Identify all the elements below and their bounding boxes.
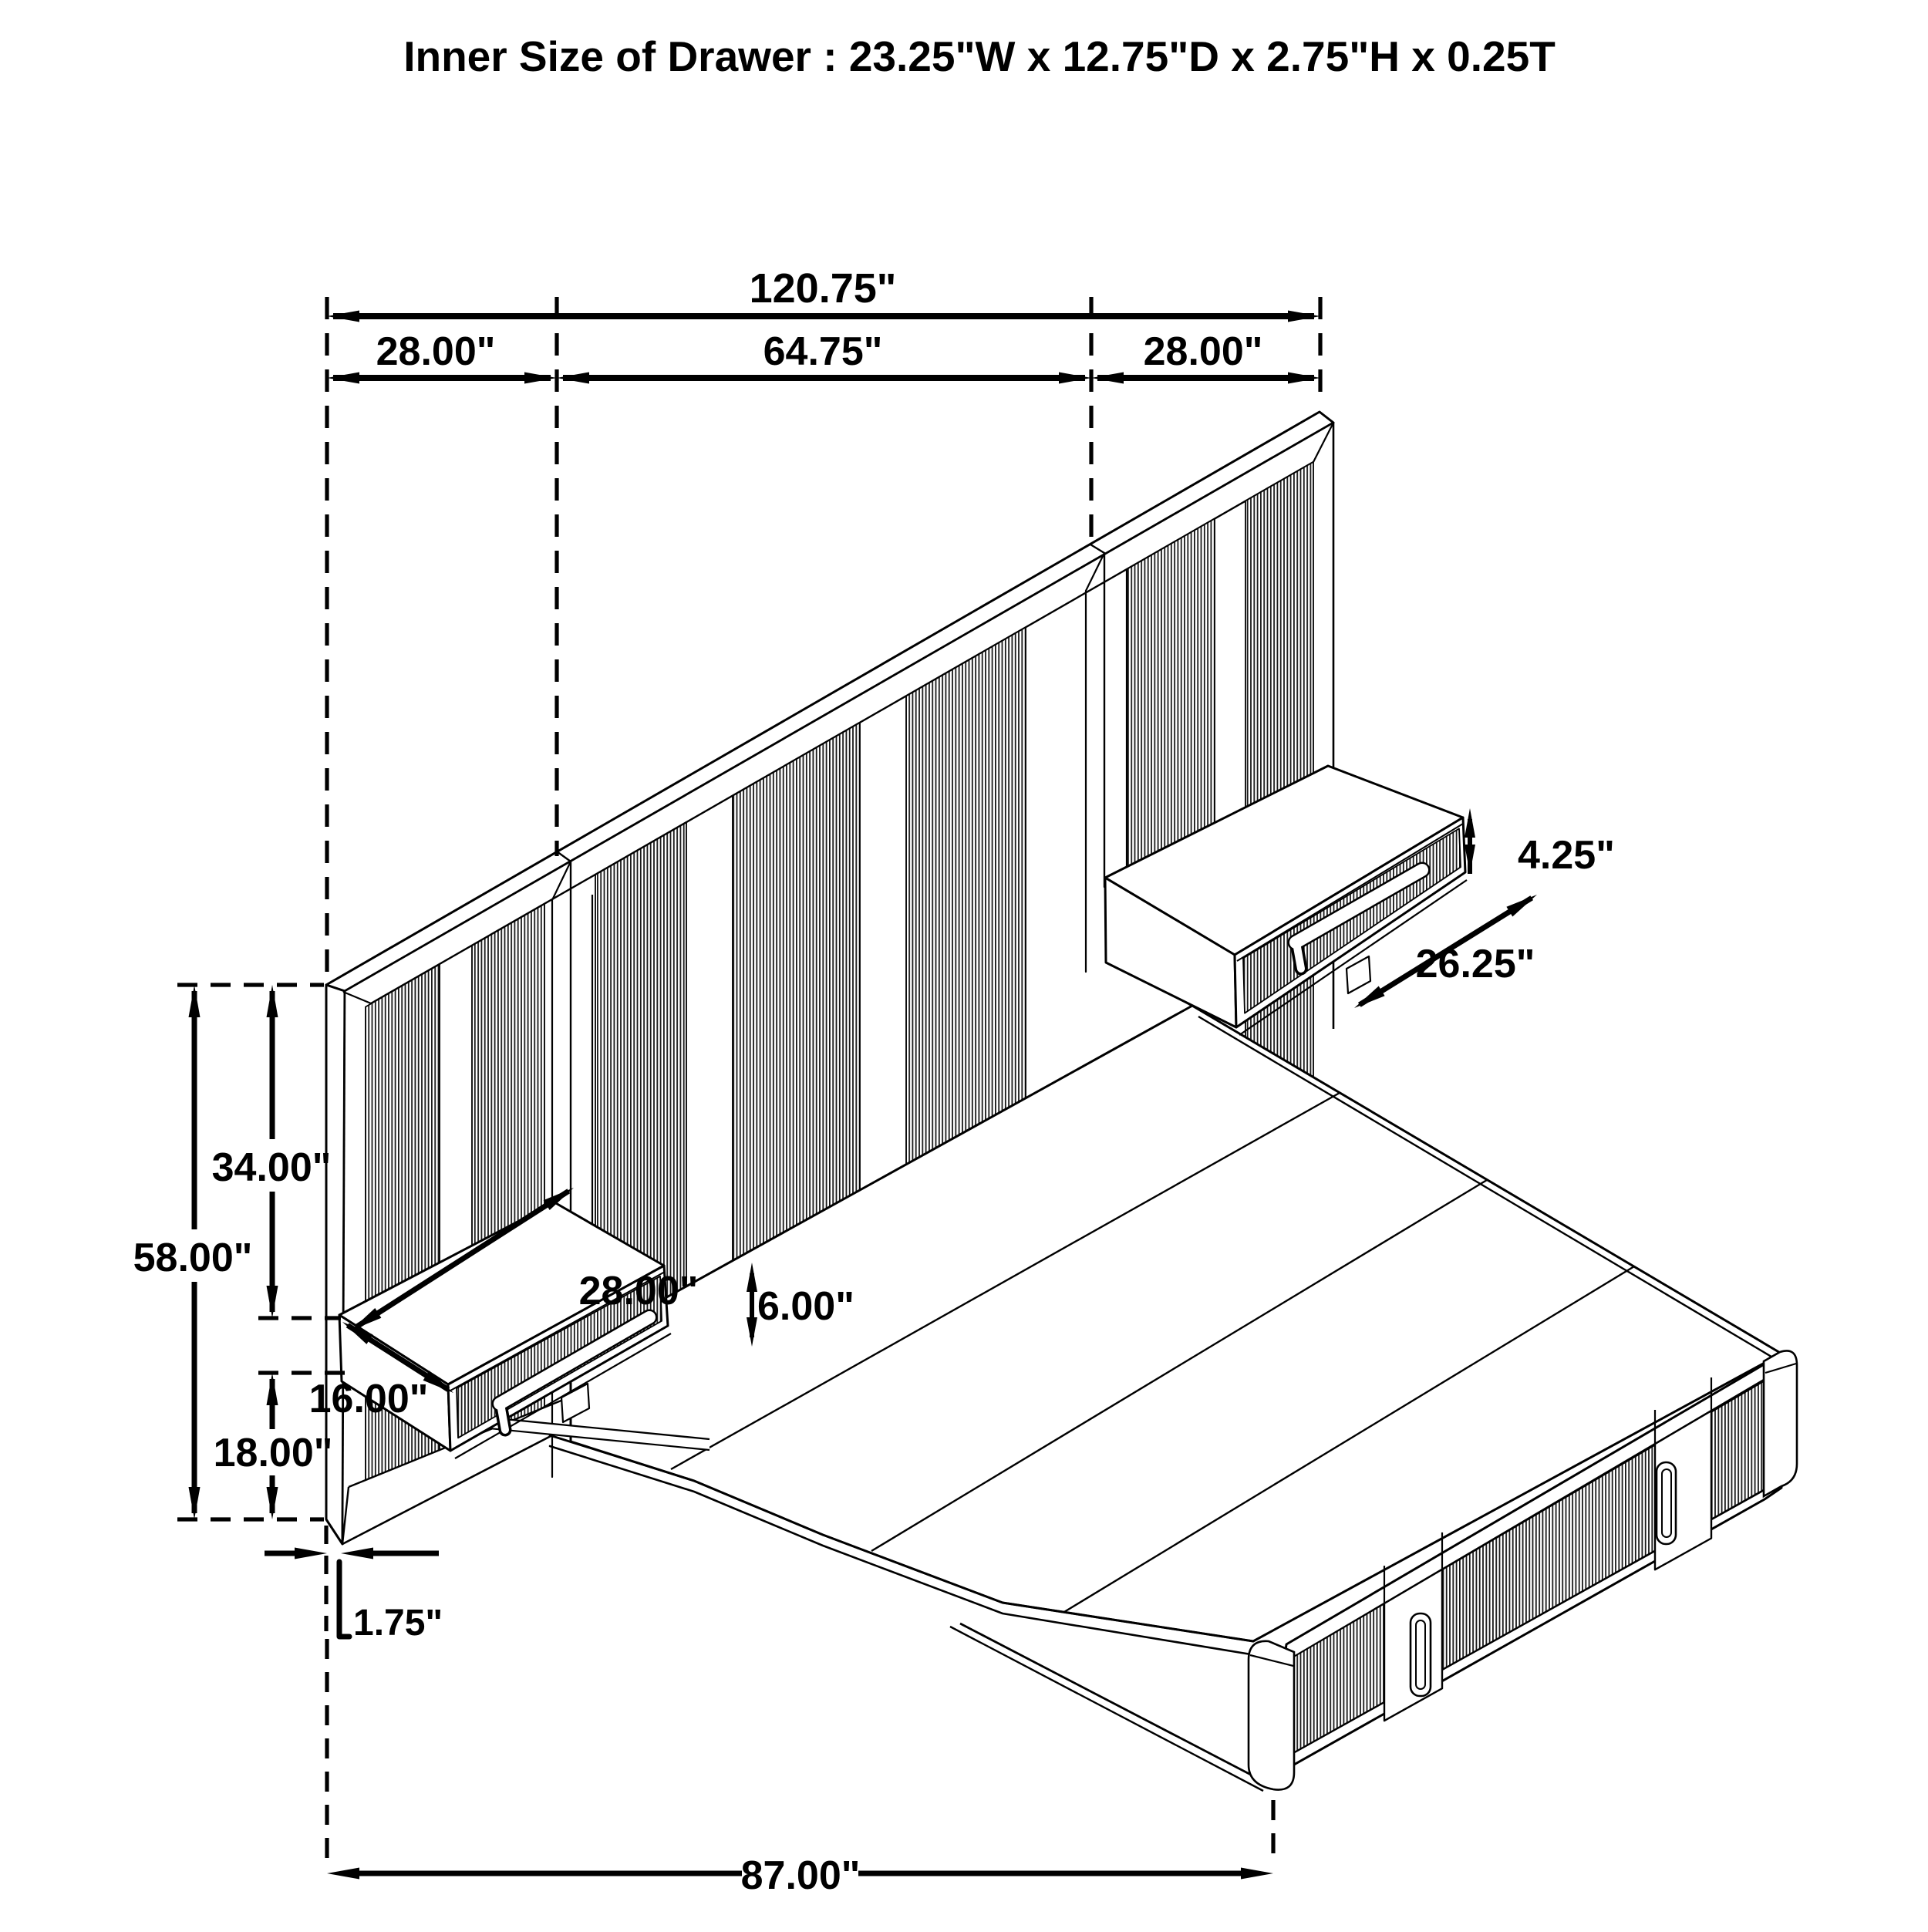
svg-text:1.75": 1.75" [353, 1603, 443, 1644]
svg-text:34.00": 34.00" [212, 1145, 332, 1190]
svg-text:18.00": 18.00" [214, 1431, 333, 1475]
svg-text:6.00": 6.00" [757, 1284, 854, 1329]
svg-text:28.00": 28.00" [579, 1269, 699, 1313]
svg-text:58.00": 58.00" [133, 1236, 253, 1280]
svg-text:4.25": 4.25" [1518, 833, 1615, 878]
svg-text:28.00": 28.00" [376, 329, 496, 374]
svg-text:28.00": 28.00" [1144, 329, 1263, 374]
svg-text:26.25": 26.25" [1416, 942, 1535, 986]
svg-text:120.75": 120.75" [750, 265, 897, 312]
svg-text:64.75": 64.75" [763, 329, 883, 374]
svg-text:16.00": 16.00" [309, 1377, 429, 1421]
svg-text:87.00": 87.00" [741, 1853, 861, 1898]
svg-text:Inner Size of Drawer : 23.25"W: Inner Size of Drawer : 23.25"W x 12.75"D… [403, 32, 1556, 80]
